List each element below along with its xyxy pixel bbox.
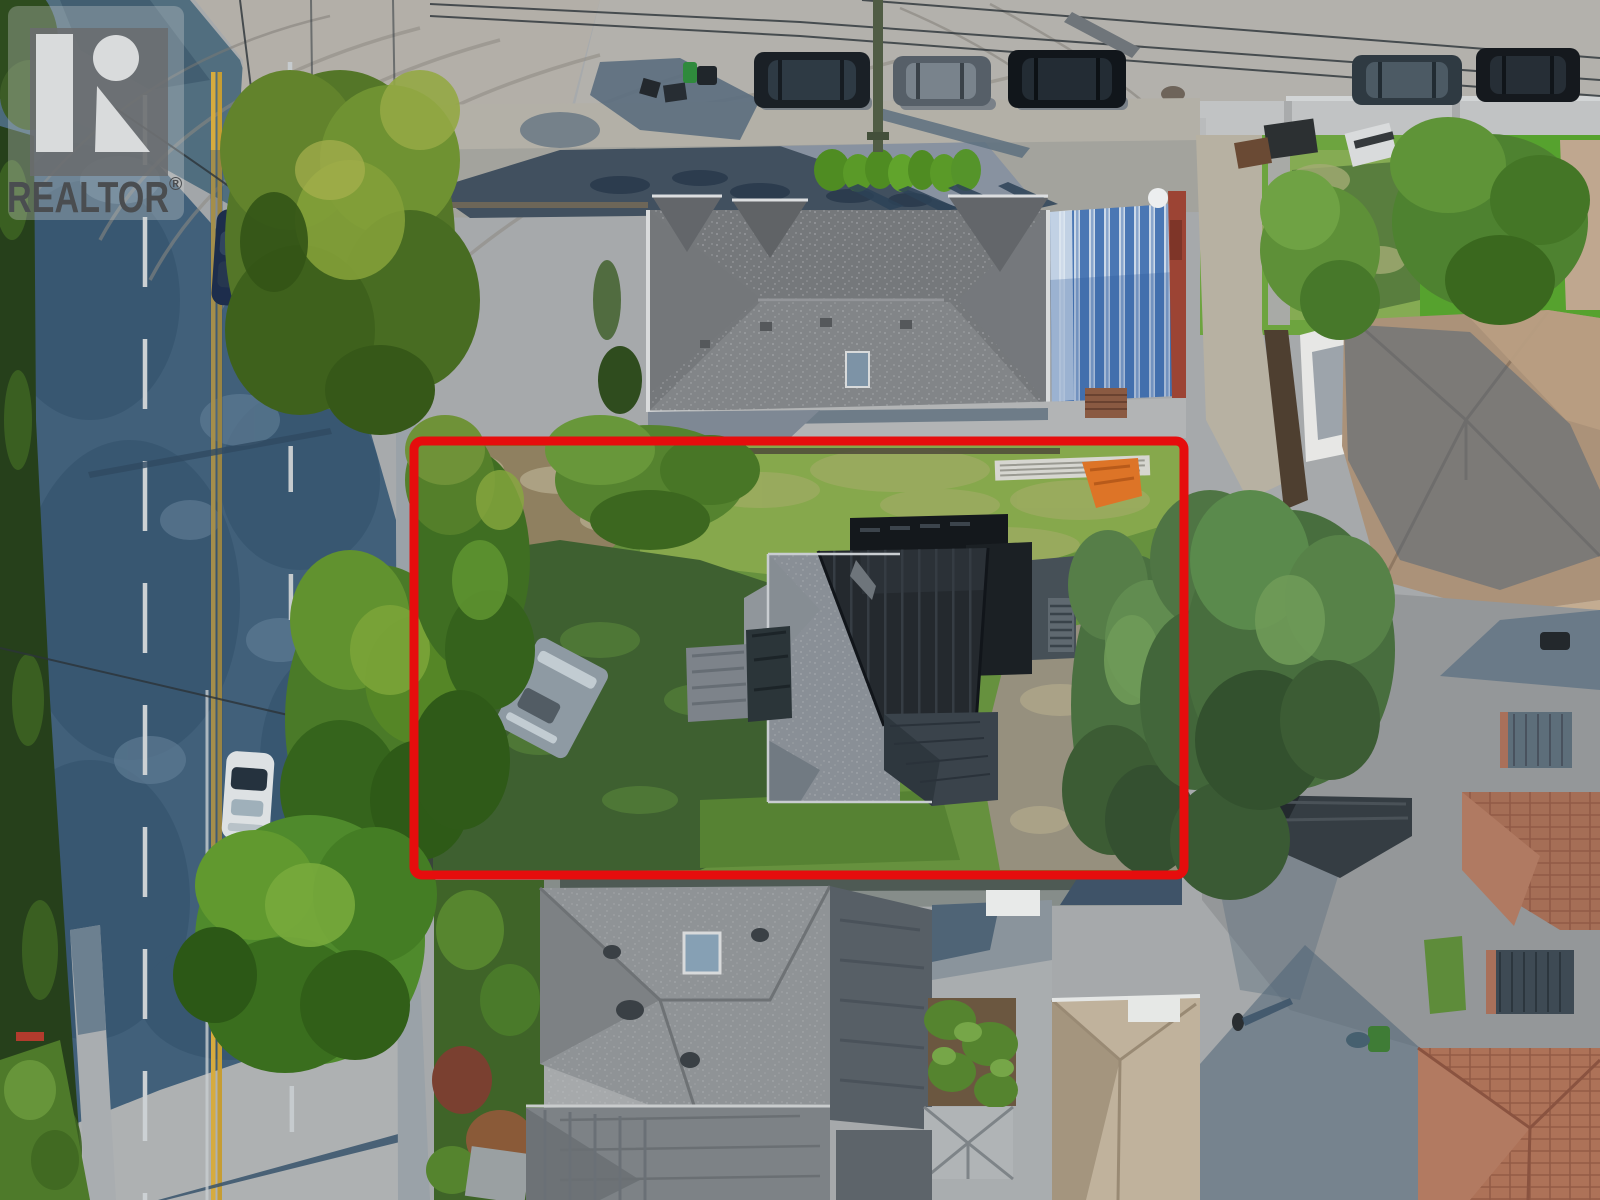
svg-text:®: ® <box>169 174 182 194</box>
svg-text:REALTOR: REALTOR <box>7 173 169 222</box>
